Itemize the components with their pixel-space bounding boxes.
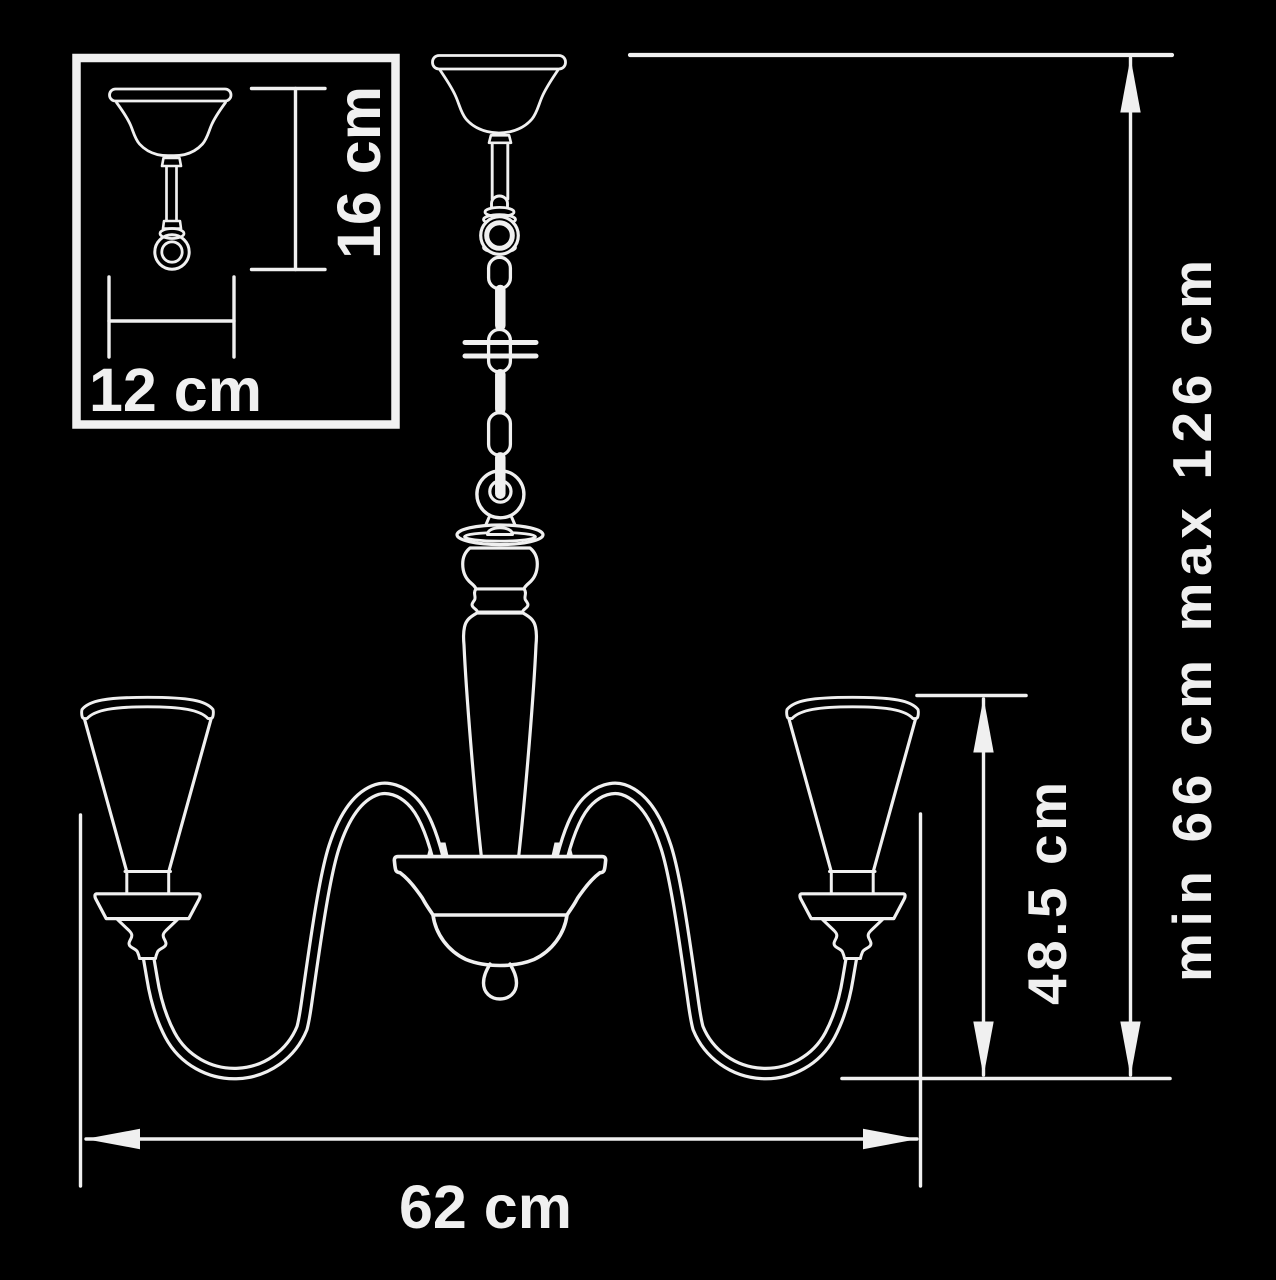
svg-text:12 cm: 12 cm — [89, 356, 262, 424]
svg-text:min 66 cm max 126 cm: min 66 cm max 126 cm — [1161, 260, 1223, 982]
svg-text:48.5 cm: 48.5 cm — [1016, 782, 1078, 1005]
svg-text:62 cm: 62 cm — [399, 1173, 572, 1241]
svg-text:16 cm: 16 cm — [325, 86, 393, 259]
